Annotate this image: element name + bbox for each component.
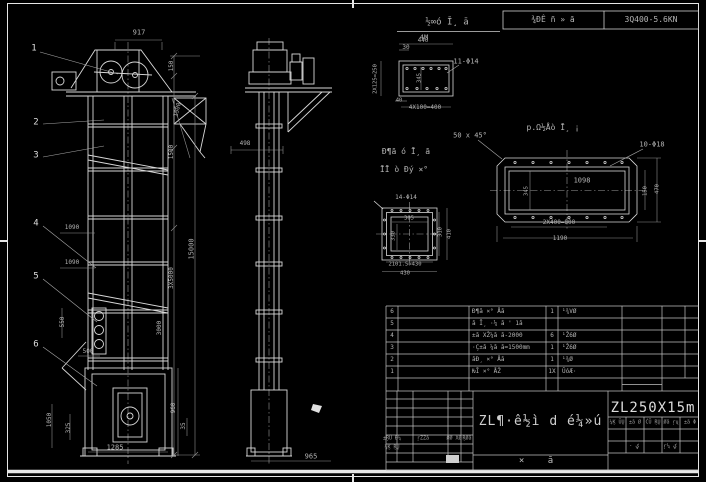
dim-label: 2101.5=430 — [388, 262, 421, 268]
balloon-6: 6 — [33, 341, 38, 350]
dim-label: 1098 — [574, 178, 591, 185]
dim-label: 10-Φ18 — [639, 142, 664, 149]
bom-cell-mat: ¹¾Ø — [562, 357, 573, 363]
bom-header-code: ' ā¼Ž — [0, 4, 353, 11]
dim-label: 11-Φ14 — [453, 59, 478, 66]
bom-cell-qty: 1 — [550, 345, 554, 351]
bom-cell-name: ·Ç±ā ¼ā ā=1500mm — [472, 345, 530, 351]
dim-label: 3000 — [157, 321, 163, 335]
dim-label: 498 — [240, 141, 251, 147]
cad-drawing-sheet: ½∞ó Ī¸ ā4M¾ĐÊ ñ » ā3Q400-5.6KN1234569171… — [0, 0, 706, 482]
dim-label: 310 — [438, 227, 444, 237]
bom-cell-mat: ¹Ž6Ø — [562, 333, 576, 339]
dim-label: 440 — [418, 38, 429, 44]
dim-label: 150 — [169, 61, 175, 72]
dim-label: 345 — [524, 186, 530, 196]
dim-label: 550 — [60, 317, 66, 328]
balloon-4: 4 — [33, 220, 38, 229]
sig-row-2: ¼Ķ ŖŲ — [384, 446, 399, 451]
bom-cell-no: 2 — [390, 357, 394, 363]
sheet-total: · ؼ — [629, 444, 639, 450]
bom-cell-mat: ¹Ž6Ø — [562, 345, 576, 351]
dim-label: 1050 — [47, 413, 53, 427]
mini-header-3: ĆŪ ŖŲ — [645, 421, 660, 426]
sig-col-1: ±ŖŪ Đ¼ — [383, 437, 401, 442]
dim-label: 410 — [447, 229, 453, 239]
dim-label: 1500 — [169, 145, 175, 159]
bom-cell-name: ā Ī¸ ·¼ ā ' 1ā — [472, 321, 523, 327]
dim-label: 30 — [402, 45, 409, 51]
bom-cell-mat: ¹¾VØ — [562, 309, 576, 315]
dim-label: 965 — [305, 454, 318, 461]
dim-label: 50 x 45° — [453, 133, 487, 140]
dim-label: 960 — [171, 403, 177, 414]
dim-label: 150 — [643, 186, 649, 196]
bom-header-material: ŗŽ āT — [0, 24, 353, 31]
view-title: ½∞ó Ī¸ ā — [425, 19, 468, 28]
bom-cell-mat: ŪóÆ· — [562, 369, 576, 375]
balloon-2: 2 — [33, 119, 38, 128]
sig-col-2: ŗŽŽā — [417, 437, 429, 442]
detail-c-title-1: Đ¶ā ó Ī¸ ā — [382, 148, 430, 156]
dim-label: 40 — [396, 98, 403, 104]
dim-label: 35 — [181, 422, 187, 429]
header-field-1: ¾ĐÊ ñ » ā — [531, 16, 574, 24]
dim-label: 305 — [404, 216, 414, 222]
dim-label: 345 — [417, 73, 423, 83]
dim-label: 3X5000 — [169, 267, 175, 289]
bom-cell-name: ǶĪ ×° ÅŽ — [472, 369, 501, 375]
dim-label: 1500 — [173, 102, 183, 118]
dim-label: 2X400=800 — [543, 220, 576, 226]
bom-cell-name: Đ¶ā ×° Åā — [472, 309, 505, 315]
dim-label: 1090 — [65, 260, 79, 266]
sheet-number: ŗ¼ ؼ — [663, 444, 676, 450]
dim-label: 330 — [391, 231, 397, 241]
dim-label: 14-Φ14 — [395, 195, 417, 201]
balloon-3: 3 — [33, 152, 38, 161]
dim-label: 2X125=250 — [373, 64, 379, 94]
mini-header-5: ±ā Φ — [684, 421, 696, 426]
bom-cell-no: 4 — [390, 333, 394, 339]
balloon-5: 5 — [33, 273, 38, 282]
dim-label: 1190 — [553, 236, 567, 242]
doc-type-label: × ā — [473, 457, 608, 466]
bom-header-note: ±,XØ — [0, 42, 353, 50]
dim-label: 15000 — [189, 238, 196, 259]
bom-cell-name: āĐ¸ ×° Åā — [472, 357, 505, 363]
sig-col-4: ŖØā — [462, 437, 471, 442]
bom-cell-no: 6 — [390, 309, 394, 315]
bom-cell-qty: 6 — [550, 333, 554, 339]
detail-b-title: p.Ω½Åò Ī¸ ¡ — [527, 124, 580, 132]
sig-col-3: ØØ XØ — [446, 437, 461, 442]
bom-cell-qty: 1 — [550, 357, 554, 363]
bom-cell-name: ±ā XŽ¼ā ā-2000 — [472, 333, 523, 339]
labels-layer: ½∞ó Ī¸ ā4M¾ĐÊ ñ » ā3Q400-5.6KN1234569171… — [0, 0, 706, 482]
dim-label: 1090 — [65, 225, 79, 231]
drawing-title: ZL¶·ê½ì d é¼»ú — [473, 415, 608, 428]
bom-cell-no: 1 — [390, 369, 394, 375]
dim-label: 430 — [400, 271, 410, 277]
bom-cell-no: 3 — [390, 345, 394, 351]
header-field-2: 3Q400-5.6KN — [625, 16, 678, 24]
mini-header-2: ±ā Ø — [629, 421, 641, 426]
detail-c-title-2: ĪĪ ò Đý ×° — [380, 166, 428, 174]
mini-header-4: Øā ŗų — [663, 421, 678, 426]
bom-cell-no: 5 — [390, 321, 394, 327]
bom-header-name: ŽĐºÆ — [0, 11, 353, 18]
dim-label: 4X100=400 — [409, 105, 442, 111]
bom-cell-qty: 1X — [548, 369, 555, 375]
bom-cell-qty: 1 — [550, 309, 554, 315]
dim-label: 470 — [655, 184, 661, 194]
model-number: ZL250X15m — [608, 400, 698, 416]
dim-label: 500 — [83, 349, 94, 355]
dim-label: 1285 — [107, 445, 124, 452]
dim-label: 325 — [66, 423, 72, 434]
mini-header-1: ¼Ķ ŪŲ — [609, 421, 624, 426]
